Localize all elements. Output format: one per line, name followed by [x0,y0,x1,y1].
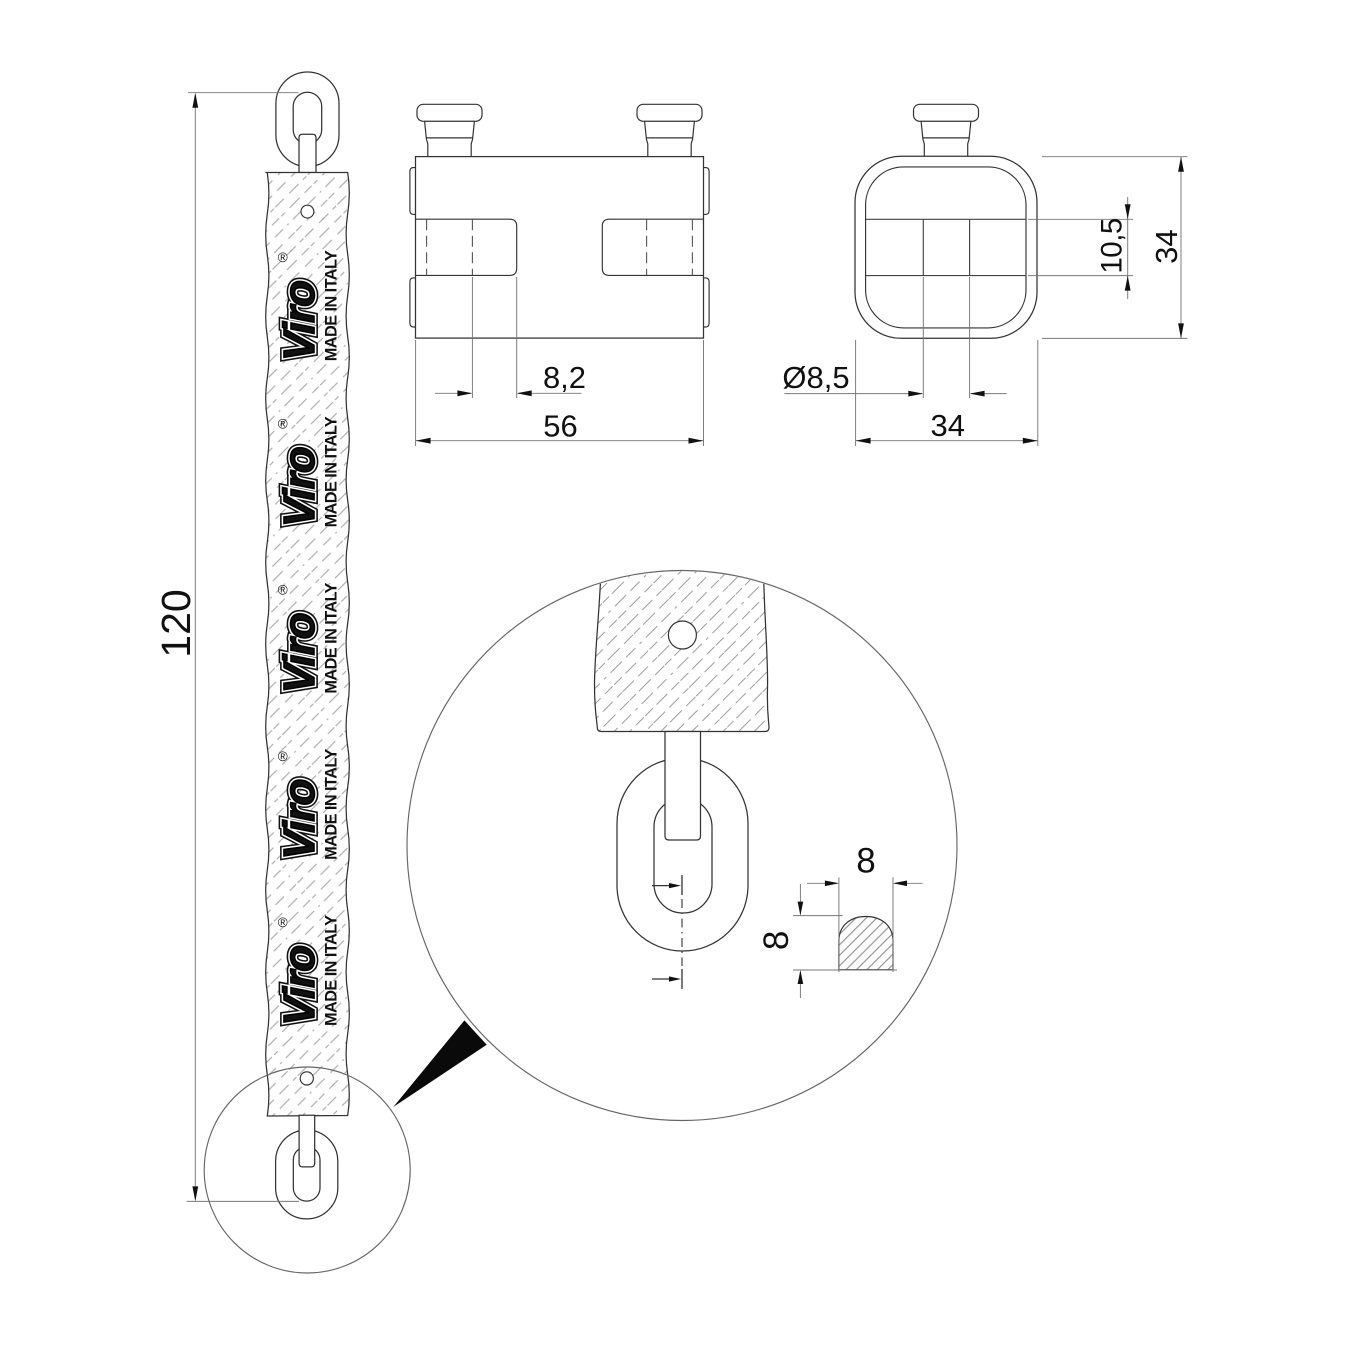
svg-text:®: ® [278,416,288,431]
svg-text:MADE IN ITALY: MADE IN ITALY [323,582,341,693]
svg-text:MADE IN ITALY: MADE IN ITALY [323,250,341,361]
svg-text:Viro: Viro [275,780,324,860]
svg-text:120: 120 [153,589,199,657]
svg-text:MADE IN ITALY: MADE IN ITALY [323,749,341,860]
svg-text:8,2: 8,2 [543,360,586,395]
svg-text:8: 8 [856,842,875,881]
svg-text:Viro: Viro [275,281,324,361]
svg-text:34: 34 [1149,229,1184,263]
svg-text:Viro: Viro [275,946,324,1026]
svg-text:®: ® [278,749,288,764]
svg-text:MADE IN ITALY: MADE IN ITALY [323,416,341,527]
svg-text:34: 34 [930,408,964,443]
svg-text:56: 56 [543,409,577,444]
svg-text:Viro: Viro [275,613,324,693]
svg-text:8: 8 [757,931,796,950]
svg-text:®: ® [278,250,288,265]
svg-text:®: ® [278,583,288,598]
svg-text:Viro: Viro [275,447,324,527]
svg-text:Ø8,5: Ø8,5 [782,360,849,395]
svg-text:MADE IN ITALY: MADE IN ITALY [323,915,341,1026]
svg-text:10,5: 10,5 [1095,218,1128,274]
svg-text:®: ® [278,915,288,930]
